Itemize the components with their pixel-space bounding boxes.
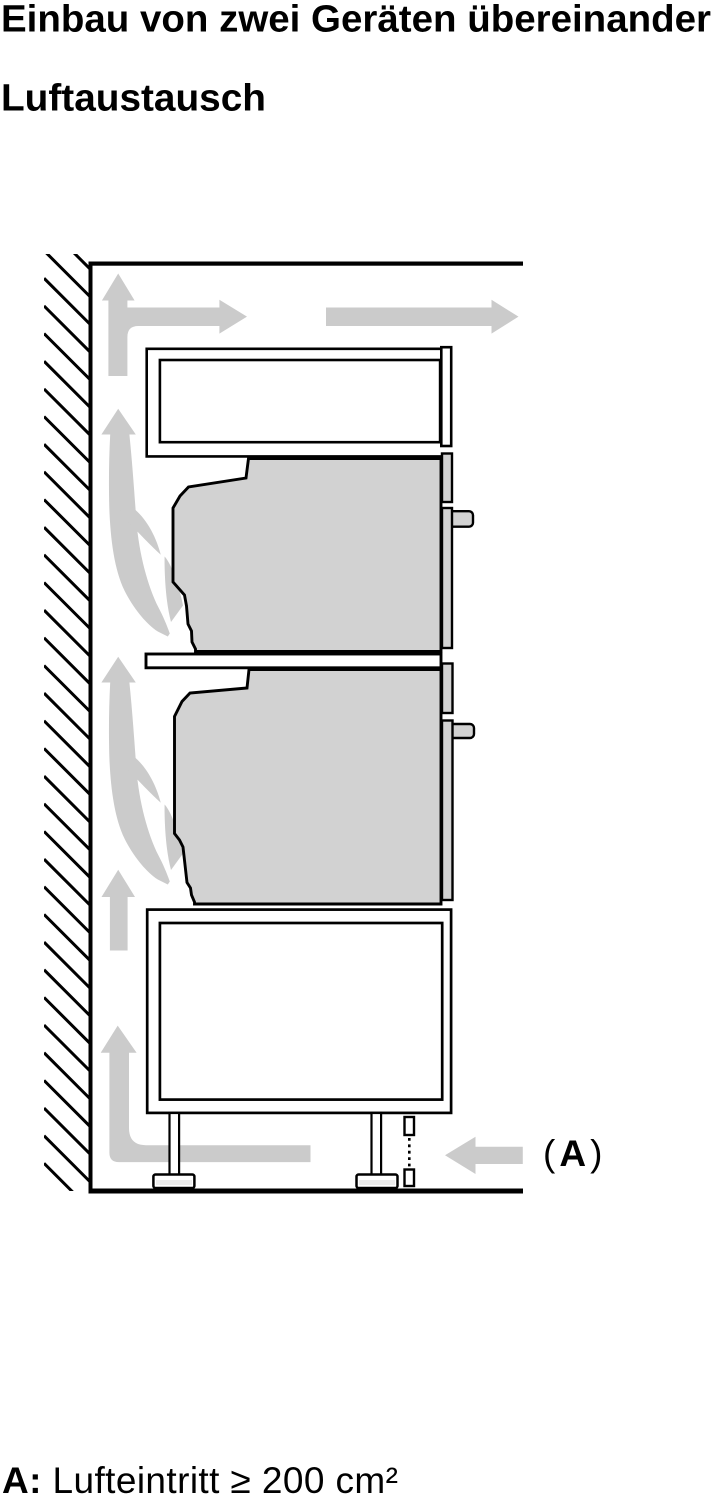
svg-text:(A): (A) — [543, 1133, 606, 1174]
svg-text:Einbau von zwei Geräten überei: Einbau von zwei Geräten übereinander — [1, 0, 711, 41]
svg-text:A: Lufteintritt ≥ 200 cm²: A: Lufteintritt ≥ 200 cm² — [2, 1460, 398, 1500]
svg-text:Luftaustausch: Luftaustausch — [1, 78, 266, 120]
